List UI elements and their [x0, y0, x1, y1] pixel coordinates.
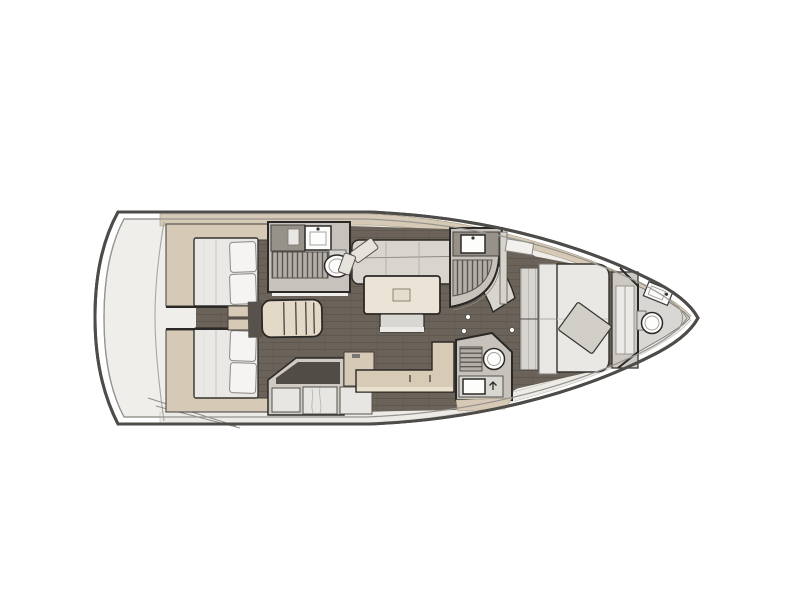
yacht-floor-plan-page [0, 0, 800, 600]
aft-cabin-top [166, 224, 272, 307]
step-tread [296, 302, 297, 335]
pillow [229, 274, 256, 305]
door-knob [461, 328, 466, 333]
step-tread [306, 302, 307, 335]
shower-grate [460, 347, 482, 371]
bulkhead [500, 232, 507, 304]
stool-front [380, 327, 424, 332]
aft-cabin-bottom [166, 328, 272, 412]
table-inlay [393, 289, 410, 301]
locker [288, 229, 299, 245]
yacht-floor-plan [0, 0, 800, 600]
bench-front [357, 387, 453, 392]
door-knob [465, 314, 470, 319]
sink [463, 379, 485, 394]
door-knob [509, 327, 514, 332]
front-locker [272, 388, 300, 412]
pillow [229, 242, 256, 273]
engine-access [248, 301, 263, 337]
aft-head-top [268, 222, 350, 292]
shower-grate [272, 252, 328, 278]
faucet-icon [316, 227, 319, 230]
faucet-icon [471, 236, 474, 239]
toilet [484, 349, 505, 370]
companionway [248, 299, 323, 337]
step-tread [314, 303, 315, 334]
stove-knob [352, 354, 360, 358]
step-tread [284, 302, 285, 335]
pillow [229, 363, 256, 394]
